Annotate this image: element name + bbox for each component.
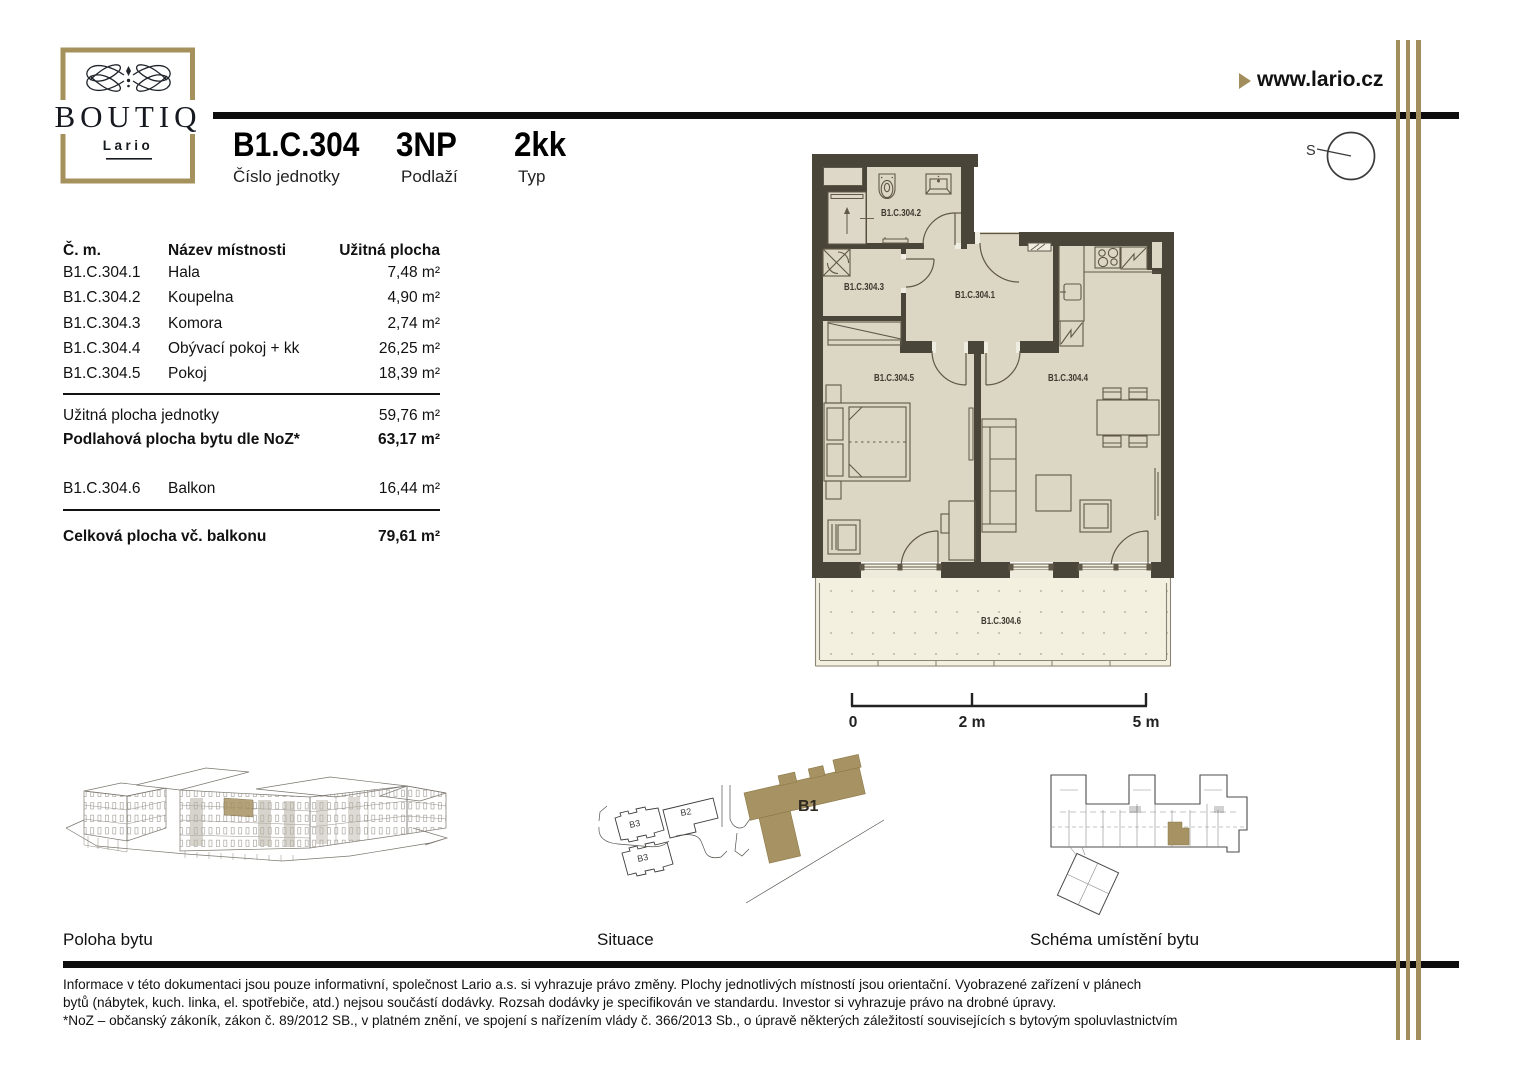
svg-text:B1.C.304.4: B1.C.304.4 bbox=[1048, 372, 1088, 384]
svg-text:2 m: 2 m bbox=[959, 714, 986, 731]
svg-text:B2: B2 bbox=[680, 806, 693, 818]
svg-text:B1.C.304.1: B1.C.304.1 bbox=[955, 289, 995, 301]
svg-text:B1.C.304.6: B1.C.304.6 bbox=[981, 615, 1021, 627]
svg-text:0: 0 bbox=[849, 714, 858, 731]
svg-text:B1.C.304.5: B1.C.304.5 bbox=[874, 372, 914, 384]
svg-text:S: S bbox=[1306, 143, 1316, 159]
svg-text:Lario: Lario bbox=[103, 138, 154, 153]
svg-text:BOUTIQ: BOUTIQ bbox=[54, 99, 201, 134]
svg-text:B1: B1 bbox=[798, 798, 819, 815]
svg-text:5 m: 5 m bbox=[1133, 714, 1160, 731]
svg-text:B1.C.304.3: B1.C.304.3 bbox=[844, 281, 884, 293]
svg-text:B1.C.304.2: B1.C.304.2 bbox=[881, 207, 921, 219]
